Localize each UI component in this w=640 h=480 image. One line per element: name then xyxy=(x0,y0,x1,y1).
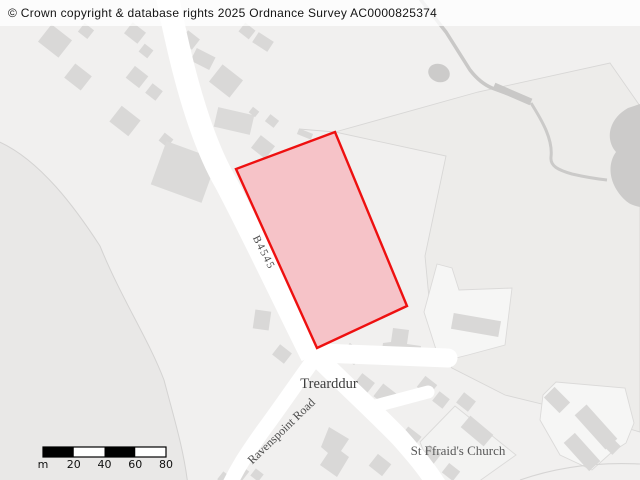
poi-label-church: St Ffraid's Church xyxy=(411,443,506,458)
building xyxy=(64,63,92,90)
building xyxy=(139,44,154,59)
os-map-extract: B4545 Trearddur Ravenspoint Road St Ffra… xyxy=(0,0,640,480)
building xyxy=(214,107,255,135)
bottom-right-boundary xyxy=(520,464,640,480)
map-canvas[interactable]: B4545 Trearddur Ravenspoint Road St Ffra… xyxy=(0,0,640,480)
scale-tick-label: 40 xyxy=(98,458,112,471)
open-land-region xyxy=(0,140,188,480)
building xyxy=(265,114,279,128)
scale-unit-label: m xyxy=(38,458,49,471)
scale-tick-label: 80 xyxy=(159,458,173,471)
building xyxy=(209,64,243,97)
road-stub-east xyxy=(320,353,448,358)
building xyxy=(369,454,392,476)
scale-bar-segment-black xyxy=(43,447,74,457)
building xyxy=(126,66,149,88)
place-label-trearddur: Trearddur xyxy=(300,376,358,392)
scale-tick-label: 60 xyxy=(128,458,142,471)
building xyxy=(109,106,140,137)
building xyxy=(250,468,263,480)
copyright-bar: © Crown copyright & database rights 2025… xyxy=(0,0,640,26)
building xyxy=(272,344,292,363)
copyright-text: © Crown copyright & database rights 2025… xyxy=(8,6,437,20)
building xyxy=(253,309,271,330)
scale-bar-segment-black xyxy=(105,447,136,457)
building xyxy=(38,24,72,57)
building xyxy=(432,391,450,408)
pond xyxy=(426,61,453,85)
scale-tick-label: 20 xyxy=(67,458,81,471)
building xyxy=(145,83,163,100)
building xyxy=(252,32,274,52)
building-z-shape xyxy=(320,427,349,477)
